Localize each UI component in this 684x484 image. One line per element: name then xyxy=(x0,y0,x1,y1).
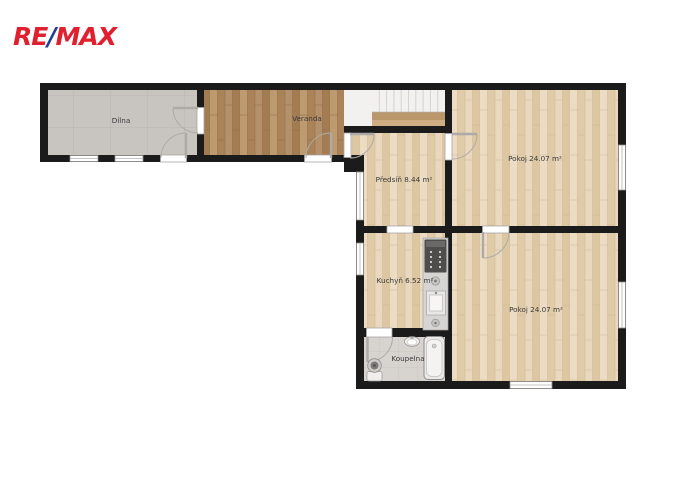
stair-landing xyxy=(344,90,372,126)
staircase xyxy=(372,90,445,126)
threshold-veranda-exterior xyxy=(305,155,332,162)
threshold-pokoj-pokoj xyxy=(483,226,510,233)
opening-predsin-kuchyn xyxy=(387,226,413,233)
label-dilna: Dílna xyxy=(112,116,131,125)
hob-center-2 xyxy=(434,322,437,325)
page: RE/MAX xyxy=(0,0,684,484)
toilet-drain xyxy=(373,364,376,367)
threshold-dilna-veranda xyxy=(197,108,204,135)
label-veranda: Veranda xyxy=(292,114,322,123)
label-koupelna: Koupelna xyxy=(391,354,424,363)
wall-pokoj-divider xyxy=(445,226,626,233)
kitchen-faucet-icon xyxy=(435,292,437,294)
wall-right xyxy=(618,83,626,389)
wall-left xyxy=(40,83,48,162)
wall-top xyxy=(40,83,626,90)
label-pokoj-dolni: Pokoj 24.07 m² xyxy=(509,305,563,314)
bathtub-drain xyxy=(432,344,436,348)
toilet-tank xyxy=(367,372,382,382)
threshold-predsin-pokoj xyxy=(445,134,452,161)
label-kuchyn: Kuchyň 6.52 m² xyxy=(377,276,434,285)
stove-panel xyxy=(426,241,445,247)
room-veranda-floor xyxy=(204,90,344,155)
label-predsin: Předsíň 8.44 m² xyxy=(376,175,433,184)
wall-stair-bottom xyxy=(344,126,452,133)
floor-plan: Dílna Veranda Předsíň 8.44 m² Pokoj 24.0… xyxy=(0,0,684,484)
threshold-koupelna xyxy=(367,328,393,337)
kitchen-sink-basin xyxy=(430,295,443,311)
stair-wood-step xyxy=(372,112,445,126)
wall-center xyxy=(445,83,452,389)
washbasin-tap xyxy=(411,337,414,339)
label-pokoj-horni: Pokoj 24.07 m² xyxy=(508,154,562,163)
room-predsin-floor xyxy=(364,155,445,226)
wall-bottom xyxy=(356,381,626,389)
washbasin-inner xyxy=(407,339,417,345)
hob-center xyxy=(434,280,437,283)
threshold-dilna-exterior xyxy=(161,155,187,162)
room-predsin-floor-upper xyxy=(351,133,445,157)
threshold-veranda-predsin xyxy=(344,133,351,158)
floors xyxy=(48,90,618,381)
